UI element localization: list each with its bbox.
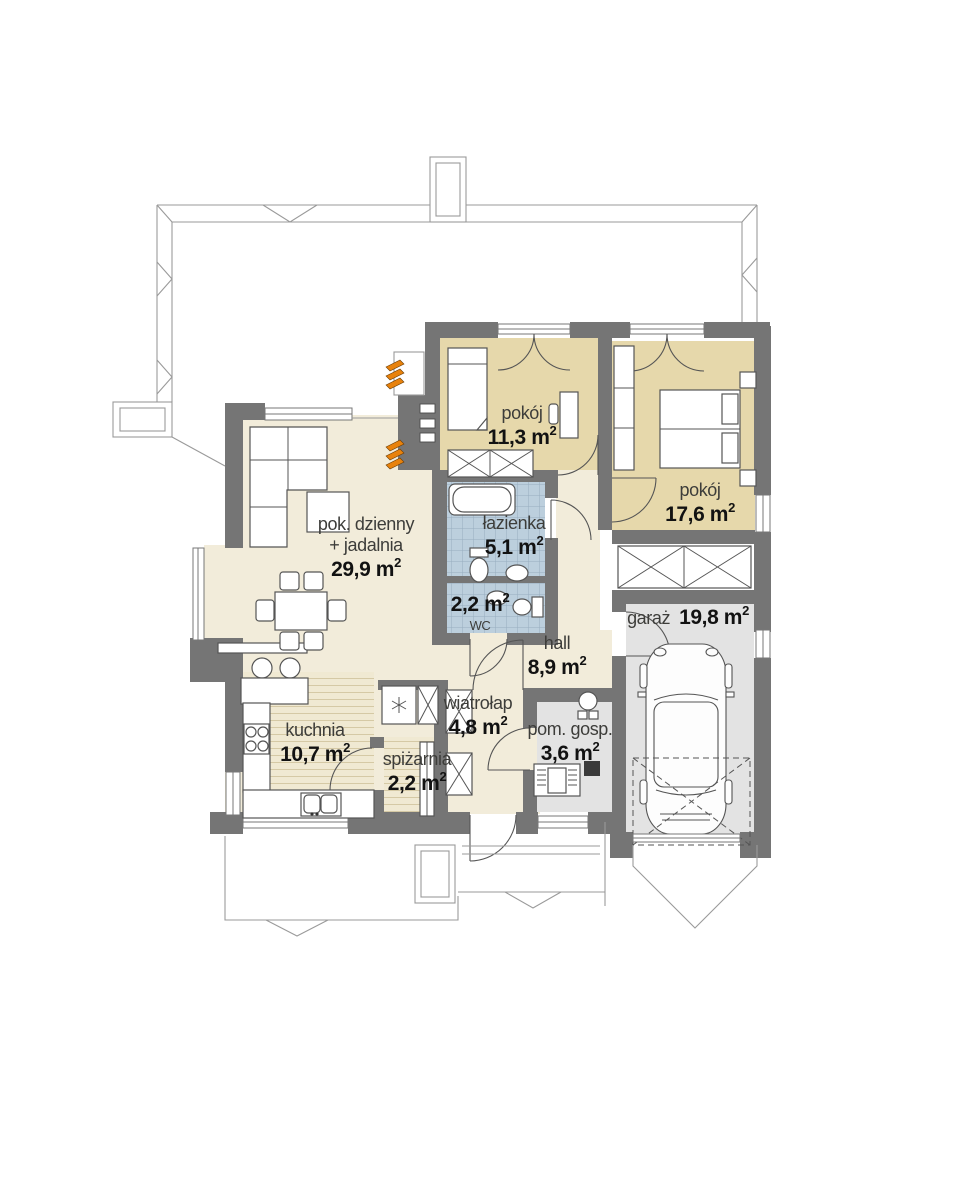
room-name: garaż [627,608,670,629]
room-label-pantry: spiżarnia 2,2 m2 [383,749,451,797]
dining-table [275,592,327,630]
room-area: 11,3 m2 [488,424,557,451]
room-name: WC [451,618,510,633]
room-area: 19,8 m2 [679,604,749,631]
wc-toilet [513,599,531,615]
room-label-bedroom-small: pokój 11,3 m2 [488,403,557,451]
room-name: wiatrołap [444,693,512,714]
room-label-bathroom: łazienka 5,1 m2 [483,513,546,561]
room-label-wc: 2,2 m2 WC [451,591,510,633]
toilet [470,558,488,582]
room-name-line2: + jadalnia [318,535,414,556]
room-label-garage: garaż 19,8 m2 [627,604,749,631]
nightstand [740,470,756,486]
room-label-kitchen: kuchnia 10,7 m2 [280,720,350,768]
room-name: pokój [665,480,735,501]
room-label-bedroom-large: pokój 17,6 m2 [665,480,735,528]
room-name: łazienka [483,513,546,534]
room-name: pok. dzienny [318,514,414,535]
room-area: 29,9 m2 [318,556,414,583]
room-label-utility: pom. gosp. 3,6 m2 [527,719,612,767]
room-area: 4,8 m2 [444,714,512,741]
kitchen-counter [241,678,308,704]
room-area: 17,6 m2 [665,501,735,528]
room-area: 8,9 m2 [528,654,587,681]
stool [252,658,272,678]
room-name: pom. gosp. [527,719,612,740]
room-name: hall [528,633,587,654]
nightstand [740,372,756,388]
room-area: 2,2 m2 [383,770,451,797]
room-name: kuchnia [280,720,350,741]
room-area: 2,2 m2 [451,591,510,618]
room-name: pokój [488,403,557,424]
stool [280,658,300,678]
room-label-hall: hall 8,9 m2 [528,633,587,681]
room-label-vestibule: wiatrołap 4,8 m2 [444,693,512,741]
bedroom-wardrobe [614,346,634,470]
car [638,644,734,834]
floorplan: pok. dzienny + jadalnia 29,9 m2 pokój 11… [0,0,964,1204]
room-area: 10,7 m2 [280,741,350,768]
single-bed [448,348,487,430]
wc-toilet-tank [532,597,543,617]
room-name: spiżarnia [383,749,451,770]
desk [560,392,578,438]
room-area: 5,1 m2 [483,534,546,561]
boiler [579,692,597,710]
room-label-living: pok. dzienny + jadalnia 29,9 m2 [318,514,414,583]
room-area: 3,6 m2 [527,740,612,767]
bidet [506,565,528,581]
